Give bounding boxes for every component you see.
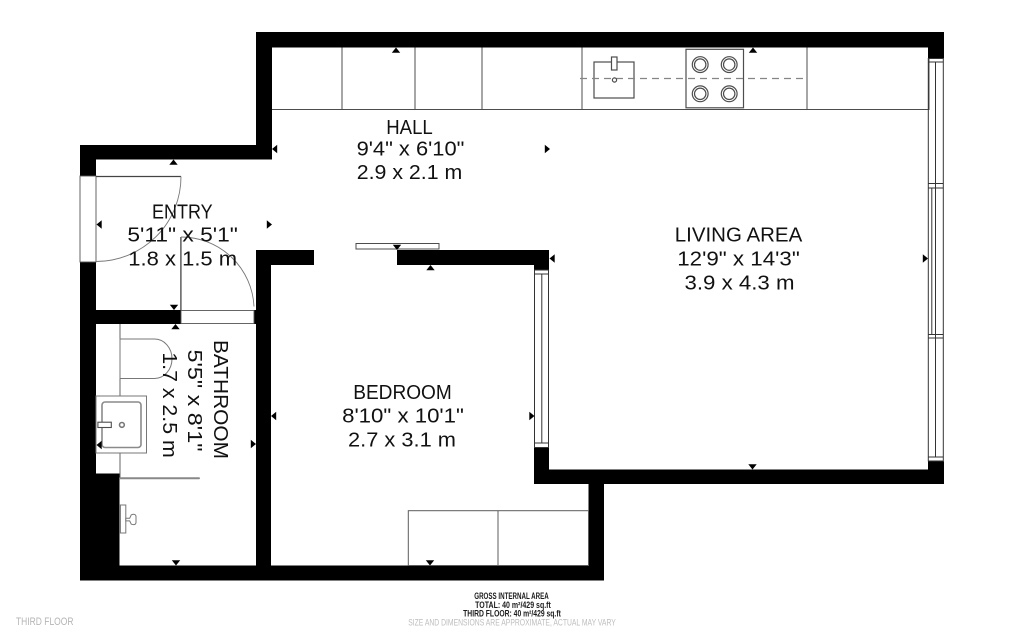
svg-text:LIVING AREA: LIVING AREA [675,225,803,247]
svg-text:5'11" x 5'1": 5'11" x 5'1" [127,225,238,247]
svg-text:2.9 x 2.1 m: 2.9 x 2.1 m [357,162,463,184]
svg-text:BATHROOM: BATHROOM [209,340,231,459]
svg-text:8'10" x 10'1": 8'10" x 10'1" [342,406,464,428]
svg-text:2.7 x 3.1 m: 2.7 x 3.1 m [348,430,456,452]
svg-text:SIZE AND DIMENSIONS ARE APPROX: SIZE AND DIMENSIONS ARE APPROXIMATE, ACT… [408,618,616,628]
svg-text:THIRD FLOOR: THIRD FLOOR [16,616,74,628]
svg-text:BEDROOM: BEDROOM [353,382,452,404]
svg-text:1.8 x 1.5 m: 1.8 x 1.5 m [128,248,237,270]
svg-text:5'5" x 8'1": 5'5" x 8'1" [183,350,205,452]
svg-text:HALL: HALL [386,117,433,139]
svg-text:3.9 x 4.3 m: 3.9 x 4.3 m [685,273,795,295]
svg-text:9'4" x 6'10": 9'4" x 6'10" [357,139,465,161]
svg-text:ENTRY: ENTRY [152,202,213,224]
svg-text:12'9" x 14'3": 12'9" x 14'3" [677,249,800,271]
svg-text:1.7 x 2.5 m: 1.7 x 2.5 m [158,352,180,457]
